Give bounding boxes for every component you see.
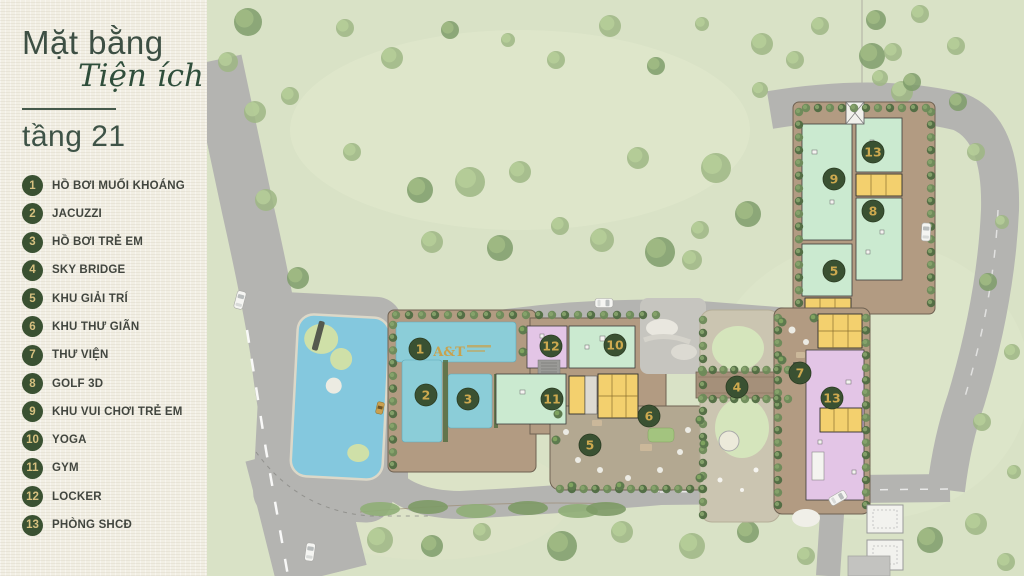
legend-item-label: GOLF 3D xyxy=(52,378,103,390)
legend-item: 2 JACUZZI xyxy=(22,203,207,224)
svg-text:2: 2 xyxy=(422,388,431,403)
svg-text:12: 12 xyxy=(542,339,559,354)
legend-item: 5 KHU GIẢI TRÍ xyxy=(22,288,207,309)
legend-item-number-badge: 11 xyxy=(22,458,43,479)
svg-text:6: 6 xyxy=(645,409,654,424)
marker-7-library: 7 xyxy=(789,362,811,384)
floor-label: tầng 21 xyxy=(22,122,207,152)
svg-text:8: 8 xyxy=(869,204,878,219)
legend-item-label: HỒ BƠI MUỐI KHOÁNG xyxy=(52,180,185,192)
core-block xyxy=(569,376,585,414)
page-title-line1: Mặt bằng xyxy=(22,26,207,59)
svg-text:13: 13 xyxy=(823,391,840,406)
svg-text:13: 13 xyxy=(864,145,881,160)
title-divider xyxy=(22,108,116,110)
page-title-line2: Tiện ích xyxy=(78,61,207,92)
marker-2-jacuzzi: 2 xyxy=(415,384,437,406)
legend-item: 11 GYM xyxy=(22,458,207,479)
marker-5-right: 5 xyxy=(823,260,845,282)
legend-item-label: LOCKER xyxy=(52,491,102,503)
legend-item-number-badge: 10 xyxy=(22,430,43,451)
marker-13-shcd-lower: 13 xyxy=(821,387,843,409)
legend-item: 7 THƯ VIỆN xyxy=(22,345,207,366)
marker-8-golf: 8 xyxy=(862,200,884,222)
legend-item-number-badge: 12 xyxy=(22,486,43,507)
landscape-pond xyxy=(290,314,390,481)
pool-logo-text: A&T xyxy=(432,345,465,360)
marker-3-kids-pool: 3 xyxy=(457,388,479,410)
marker-4-bridge: 4 xyxy=(726,376,748,398)
legend-list: 1 HỒ BƠI MUỐI KHOÁNG 2 JACUZZI 3 HỒ BƠI … xyxy=(22,175,207,536)
legend-item-number-badge: 13 xyxy=(22,515,43,536)
legend-item-number-badge: 4 xyxy=(22,260,43,281)
legend-item-label: JACUZZI xyxy=(52,208,102,220)
legend-item: 3 HỒ BƠI TRẺ EM xyxy=(22,232,207,253)
legend-item: 12 LOCKER xyxy=(22,486,207,507)
marker-11-gym: 11 xyxy=(541,388,563,410)
svg-text:3: 3 xyxy=(464,392,473,407)
legend-item-number-badge: 8 xyxy=(22,373,43,394)
marker-5-deck: 5 xyxy=(579,434,601,456)
marker-13-shcd-upper: 13 xyxy=(862,141,884,163)
legend-panel: Mặt bằng Tiện ích tầng 21 1 HỒ BƠI MUỐI … xyxy=(0,0,207,576)
legend-item-number-badge: 3 xyxy=(22,232,43,253)
legend-item-number-badge: 7 xyxy=(22,345,43,366)
svg-text:4: 4 xyxy=(733,380,742,395)
svg-text:10: 10 xyxy=(606,338,624,353)
legend-item-label: KHU GIẢI TRÍ xyxy=(52,293,128,305)
legend-item: 4 SKY BRIDGE xyxy=(22,260,207,281)
legend-item-label: YOGA xyxy=(52,434,87,446)
svg-text:5: 5 xyxy=(830,264,839,279)
marker-1-pool: 1 xyxy=(409,338,431,360)
svg-text:11: 11 xyxy=(543,392,560,407)
legend-item-number-badge: 6 xyxy=(22,316,43,337)
legend-item-number-badge: 9 xyxy=(22,401,43,422)
legend-item-label: KHU THƯ GIÃN xyxy=(52,321,139,333)
legend-item-label: GYM xyxy=(52,462,79,474)
legend-item-label: PHÒNG SHCĐ xyxy=(52,519,132,531)
legend-item: 13 PHÒNG SHCĐ xyxy=(22,515,207,536)
marker-12-locker: 12 xyxy=(540,335,562,357)
legend-item-label: SKY BRIDGE xyxy=(52,264,125,276)
marker-10-yoga: 10 xyxy=(604,334,626,356)
legend-item-number-badge: 5 xyxy=(22,288,43,309)
svg-text:1: 1 xyxy=(416,342,425,357)
legend-item-label: HỒ BƠI TRẺ EM xyxy=(52,236,143,248)
legend-item-label: THƯ VIỆN xyxy=(52,349,109,361)
core-block xyxy=(598,374,638,418)
svg-text:7: 7 xyxy=(796,366,805,381)
svg-text:9: 9 xyxy=(830,172,839,187)
legend-item: 9 KHU VUI CHƠI TRẺ EM xyxy=(22,401,207,422)
core-block xyxy=(856,174,902,196)
marker-6-relax: 6 xyxy=(638,405,660,427)
right-tower-lower xyxy=(774,308,870,514)
core-block xyxy=(818,314,862,348)
legend-item: 6 KHU THƯ GIÃN xyxy=(22,316,207,337)
legend-item-number-badge: 2 xyxy=(22,203,43,224)
legend-item: 1 HỒ BƠI MUỐI KHOÁNG xyxy=(22,175,207,196)
legend-item: 10 YOGA xyxy=(22,430,207,451)
legend-item-label: KHU VUI CHƠI TRẺ EM xyxy=(52,406,183,418)
core-block xyxy=(820,408,862,432)
marker-9-playground: 9 xyxy=(823,168,845,190)
svg-text:5: 5 xyxy=(586,438,595,453)
legend-item-number-badge: 1 xyxy=(22,175,43,196)
legend-item: 8 GOLF 3D xyxy=(22,373,207,394)
site-plan-page: A&T xyxy=(0,0,1024,576)
